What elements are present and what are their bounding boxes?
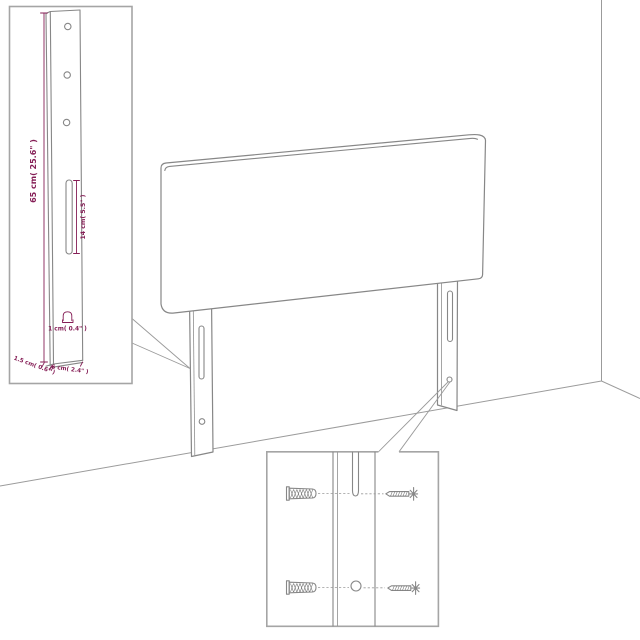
height-dimension-label: 65 cm( 25.6" ) [29,139,38,203]
slot-dimension-label: 14 cm( 5.5" ) [80,194,87,239]
mounting-hardware-inset [267,452,439,627]
headboard-left-leg [190,298,214,457]
leg-dimension-inset: 65 cm( 25.6" ) 14 cm( 5.5" ) 1 cm( 0.4" … [10,7,133,384]
hook-dimension-label: 1 cm( 0.4" ) [48,327,87,333]
headboard-panel [161,135,486,314]
headboard-dimension-diagram: 65 cm( 25.6" ) 14 cm( 5.5" ) 1 cm( 0.4" … [0,0,640,640]
leg-inset-leader-top [132,319,190,369]
mount-inset-leader-right [399,382,450,452]
mount-inset-leader-left [379,382,449,452]
leg-inset-leader-bottom [132,343,190,369]
headboard-right-leg [438,279,458,411]
floor-line-right [602,381,640,399]
